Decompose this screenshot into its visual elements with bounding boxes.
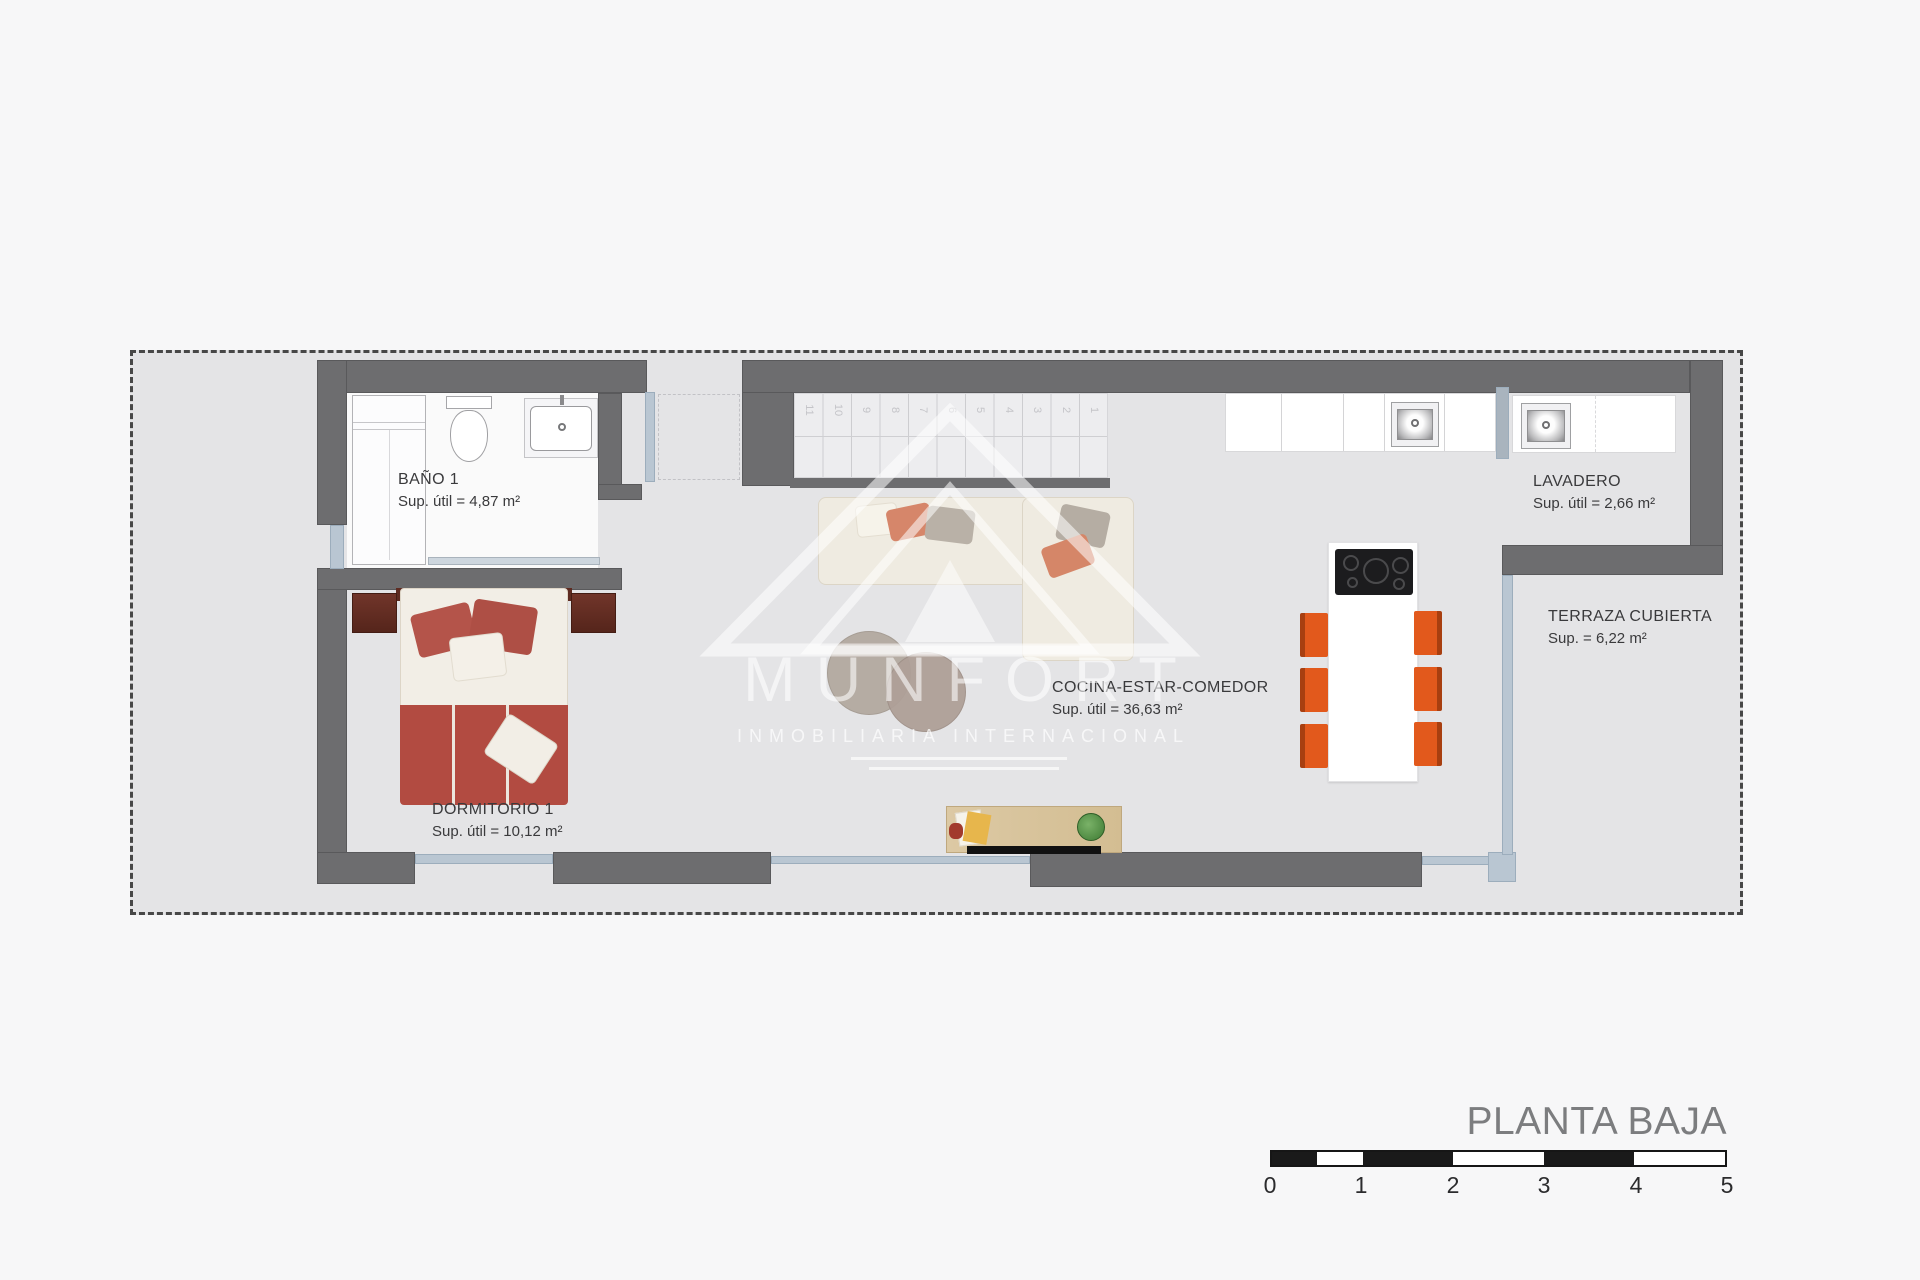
scale-tick-label: 5 (1721, 1172, 1734, 1199)
shower-drain-line (389, 430, 390, 560)
dining-chair (1300, 613, 1328, 657)
toilet-bowl (450, 410, 488, 462)
window-bedroom-left (330, 525, 344, 569)
watermark-underline (869, 767, 1059, 770)
room-name: BAÑO 1 (398, 468, 520, 491)
dining-chair (1414, 722, 1442, 766)
shower-line (353, 422, 425, 423)
counter-divider (1384, 394, 1385, 451)
room-area: Sup. útil = 10,12 m² (432, 821, 563, 843)
drain-icon (1542, 421, 1550, 429)
room-label-lavadero: LAVADERO Sup. útil = 2,66 m² (1533, 470, 1655, 515)
scale-bar-strip (1270, 1150, 1727, 1167)
wall-bedroom-top (317, 568, 622, 590)
room-name: LAVADERO (1533, 470, 1655, 493)
scale-segment (1544, 1152, 1635, 1165)
kitchen-sink (1391, 402, 1439, 447)
scale-segment (1272, 1152, 1317, 1165)
scale-segment (1453, 1152, 1544, 1165)
toilet-tank (446, 396, 492, 409)
dining-chair (1300, 724, 1328, 768)
faucet-icon (560, 395, 564, 405)
room-area: Sup. útil = 4,87 m² (398, 491, 520, 513)
room-area: Sup. útil = 36,63 m² (1052, 699, 1269, 721)
floor-plan-page: 11 10 9 8 7 6 5 4 3 2 1 (0, 0, 1920, 1280)
wall-top-center (742, 360, 1690, 393)
wall-bedroom-left (317, 570, 347, 884)
faucet-icon (558, 423, 566, 431)
bed (400, 588, 568, 804)
scale-tick-label: 2 (1447, 1172, 1460, 1199)
lavadero-sink-bowl (1527, 410, 1565, 442)
wall-right-outer (1690, 360, 1723, 575)
kitchen-sink-bowl (1397, 409, 1433, 440)
scale-segment (1317, 1152, 1362, 1165)
room-label-cocina: COCINA-ESTAR-COMEDOR Sup. útil = 36,63 m… (1052, 676, 1269, 721)
watermark-logo-icon (698, 402, 1218, 662)
burner-icon (1393, 578, 1405, 590)
deco-flower (949, 823, 963, 839)
wall-lavadero-bottom (1502, 545, 1723, 575)
scale-tick-label: 3 (1538, 1172, 1551, 1199)
island-table (1328, 542, 1418, 782)
scale-tick-label: 0 (1264, 1172, 1277, 1199)
counter-divider (1281, 394, 1282, 451)
bathroom-vanity (524, 398, 598, 458)
window-living-bottom (771, 856, 1030, 864)
room-area: Sup. = 6,22 m² (1548, 628, 1712, 650)
window-bedroom-bottom (415, 854, 553, 864)
nightstand-right (571, 593, 616, 633)
glass-corner-block (1488, 852, 1516, 882)
wall-bottom-left-b (553, 852, 771, 884)
burner-icon (1343, 555, 1359, 571)
wall-bottom-left-a (317, 852, 415, 884)
burner-icon (1363, 558, 1389, 584)
wall-bottom-right (1030, 852, 1422, 887)
room-area: Sup. útil = 2,66 m² (1533, 493, 1655, 515)
scale-segment (1634, 1152, 1725, 1165)
tv-bar (967, 846, 1101, 854)
bed-pillow-white (449, 632, 508, 682)
scale-tick-label: 4 (1630, 1172, 1643, 1199)
scale-tick-label: 1 (1355, 1172, 1368, 1199)
room-label-bano1: BAÑO 1 Sup. útil = 4,87 m² (398, 468, 520, 513)
room-name: COCINA-ESTAR-COMEDOR (1052, 676, 1269, 699)
kitchen-counter (1225, 393, 1496, 452)
watermark-underline (851, 757, 1067, 760)
rug-circle (886, 652, 966, 732)
wall-bath-right (598, 393, 622, 498)
scale-bar: 0 1 2 3 4 5 (1270, 1150, 1727, 1210)
deco-folder (963, 811, 992, 845)
burner-icon (1347, 577, 1358, 588)
blanket-seam (452, 705, 455, 805)
drain-icon (1411, 419, 1419, 427)
lavadero-counter (1512, 395, 1676, 453)
kitchen-lavadero-divider (1496, 387, 1509, 459)
dining-chair (1300, 668, 1328, 712)
counter-divider (1343, 394, 1344, 451)
wall-bath-left (317, 360, 347, 525)
wall-bath-top (317, 360, 647, 393)
entry-door-sidelight (645, 392, 655, 482)
tv-console (946, 806, 1122, 853)
burner-icon (1392, 557, 1409, 574)
scale-segment (1363, 1152, 1454, 1165)
lavadero-sink (1521, 403, 1571, 449)
room-label-terraza: TERRAZA CUBIERTA Sup. = 6,22 m² (1548, 605, 1712, 650)
cooktop (1335, 549, 1413, 595)
dining-chair (1414, 611, 1442, 655)
room-name: DORMITORIO 1 (432, 798, 563, 821)
room-name: TERRAZA CUBIERTA (1548, 605, 1712, 628)
plant-pot (1077, 813, 1105, 841)
dining-chair (1414, 667, 1442, 711)
counter-divider-dashed (1595, 396, 1596, 452)
wall-bath-right-stub (598, 484, 642, 500)
page-title: PLANTA BAJA (1200, 1100, 1727, 1144)
bedroom-door-leaf (428, 557, 600, 565)
nightstand-left (352, 593, 397, 633)
glass-wall-terrace (1502, 575, 1513, 855)
room-label-dormitorio1: DORMITORIO 1 Sup. útil = 10,12 m² (432, 798, 563, 843)
counter-divider (1444, 394, 1445, 451)
